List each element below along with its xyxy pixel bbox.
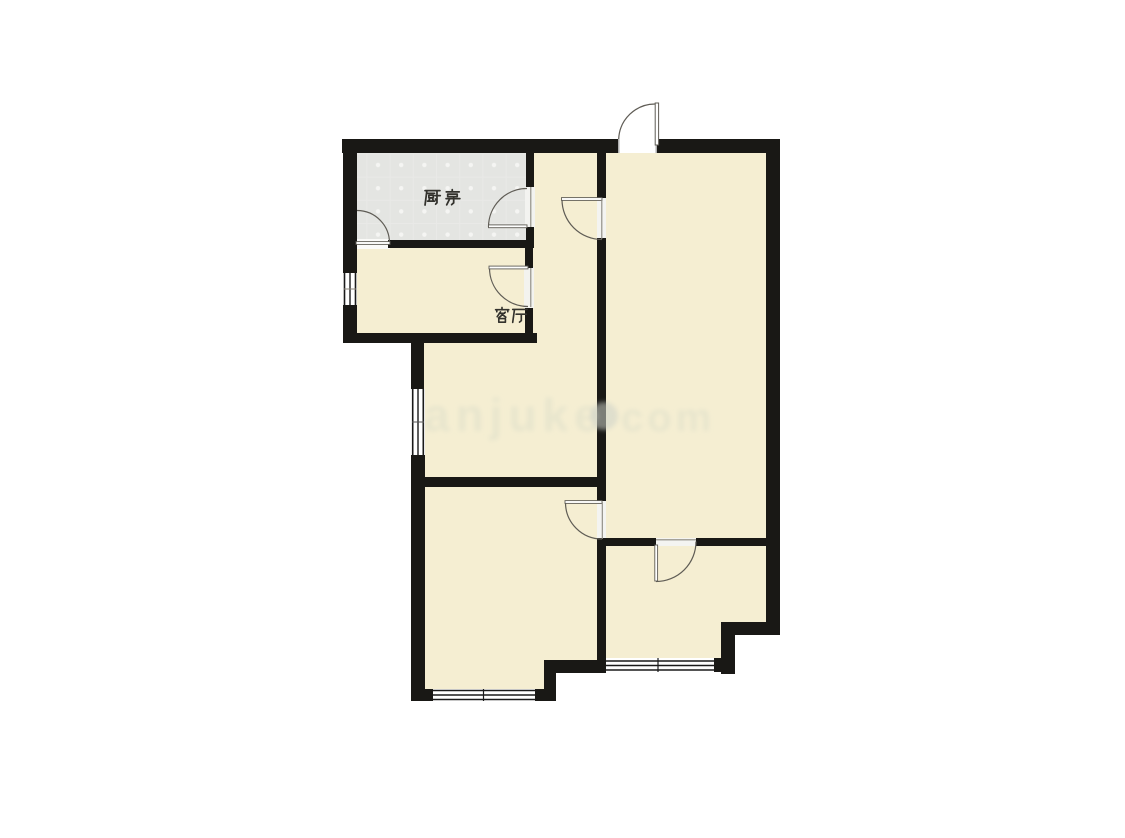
svg-text:anjuke: anjuke xyxy=(424,389,606,441)
svg-text:com: com xyxy=(621,396,715,440)
